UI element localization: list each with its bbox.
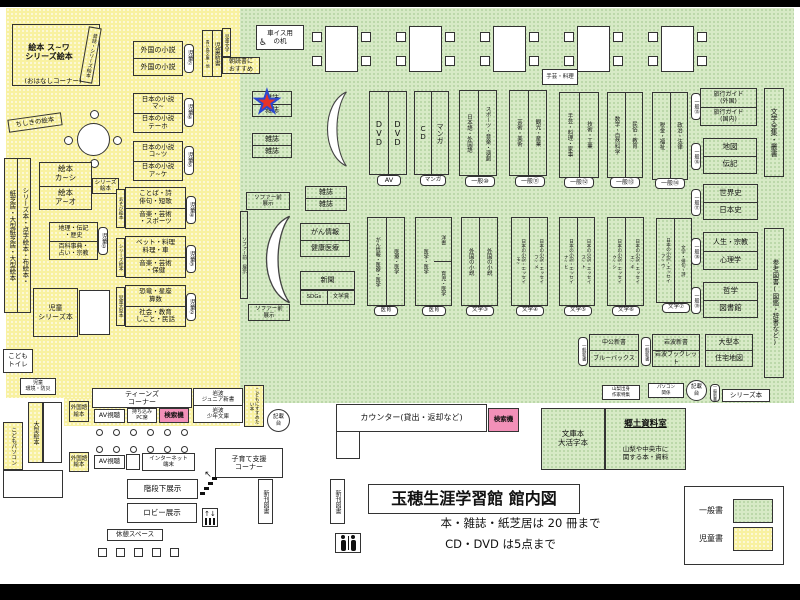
reading-table-3-chair-0 xyxy=(480,32,490,42)
iwanami-shinsho-shelf-row-0: 岩波新書 xyxy=(653,335,699,350)
shinbun-shelf-row-0: 新聞 xyxy=(301,272,354,289)
jido-shinsho-shelf-col-0: 青い鳥文庫・他 xyxy=(203,31,212,76)
reading-table-1-chair-3 xyxy=(361,56,371,66)
kaidan-shita-tenji-row-0: 階段下展示 xyxy=(128,480,197,498)
jinsei-shelf-row-1: 心理学 xyxy=(704,251,757,270)
chuko-shinsho-shelf-row-0: 中公新書 xyxy=(590,335,638,350)
jido-kankyo-bosai-box-row-0: 児童 環境・防災 xyxy=(21,379,55,394)
legend-general-swatch xyxy=(733,499,773,523)
iwanami-junior-shelf-rows: 岩波 ジュニア新書岩波 少年文庫 xyxy=(194,389,242,422)
lobby-tenji: ロビー展示 xyxy=(127,503,197,523)
gaikokugo-ehon-2-row-0: 外国語 絵本 xyxy=(70,453,88,471)
pc-kankei-box-rows: パソコン 関係 xyxy=(649,384,683,397)
kyodo-shiryo-shitsu: 郷土資料室山梨や中央市に 関する本・資料 xyxy=(605,408,686,470)
iwanami-shinsho-shelf-rows: 岩波新書岩波ブックレット xyxy=(653,335,699,366)
iwanami-junior-shelf-row-1: 岩波 少年文庫 xyxy=(194,405,242,422)
jido-series-box: 児童 シリーズ本 xyxy=(33,288,78,337)
ippan12-shelf-col-1: 技術・工業 xyxy=(579,93,599,177)
reading-table-4 xyxy=(564,26,623,72)
asadoku-osusume-box-rows: 朝読書に おすすめ xyxy=(223,58,259,73)
series-tenji-shelf-cols: 紙芝居・大型紙芝居・大型絵本シリーズ本・点字絵本・布絵本・ xyxy=(5,159,30,312)
reading-table-2-chair-0 xyxy=(396,32,406,42)
iwanami-junior-shelf-row-0: 岩波 ジュニア新書 xyxy=(194,389,242,405)
sofa-2-shape xyxy=(250,214,294,305)
ippan11-badge: 一般⑪ xyxy=(515,176,545,187)
yamanashi-sakka-box-rows: 山梨出身 作家特集 xyxy=(603,386,639,399)
asadoku-osusume-box-row-0: 朝読書に おすすめ xyxy=(223,58,259,73)
map-title: 玉穂生涯学習館 館内図 xyxy=(368,484,580,514)
shinbun-shelf: 新聞 xyxy=(300,271,355,290)
tetsugaku-shelf: 哲学図書館 xyxy=(703,282,758,318)
chizu-denki-shelf-rows: 地図伝記 xyxy=(704,139,756,173)
av-shicho-1: AV視聴 xyxy=(94,409,125,423)
toilet-icon xyxy=(335,533,361,553)
counter-rows: カウンター(貸出・返却など) xyxy=(337,405,486,431)
bungaku3-shelf-col-0: 外国の小説 xyxy=(462,218,479,305)
ippan11-shelf-col-1: 観光・産業 xyxy=(528,91,547,175)
bungaku5-badge: 文学⑤ xyxy=(564,306,592,316)
elevator-icon-p-0 xyxy=(205,518,207,525)
nihon-shosetsu-jido-shelf-2: 日本の小説 コ~ツ日本の小説 ア~ケ xyxy=(133,141,183,181)
tetsugaku-shelf-row-0: 哲学 xyxy=(704,283,757,300)
med-shelf-2-col-0: 医学・医学 xyxy=(416,218,434,305)
map-title-rows: 玉穂生涯学習館 館内図 xyxy=(369,485,579,513)
kyodo-shiryo-shitsu-row-1: 山梨や中央市に 関する本・資料 xyxy=(606,439,685,469)
round-table-chair-2 xyxy=(64,136,73,145)
ryoko-guide-shelf: 旅行ガイド (外国)旅行ガイド (国内) xyxy=(700,88,757,126)
reading-table-1-chair-2 xyxy=(361,32,371,42)
chair-row-1-seat-5 xyxy=(181,429,188,436)
ehon-ka-shi-shelf-row-1: 絵本 ア~オ xyxy=(40,186,91,210)
kyukei-space-label: 休憩スペース xyxy=(107,529,163,541)
kaidan-shita-tenji: 階段下展示 xyxy=(127,479,198,499)
gaikokugo-ehon-1-row-0: 外国語 絵本 xyxy=(70,402,88,421)
ippan10-shelf-col-0: 日本語・外国語 xyxy=(460,91,478,175)
gaikokugo-ehon-1-rows: 外国語 絵本 xyxy=(70,402,88,421)
sofa-tenji-bottom-row-0: ソファー前 展示 xyxy=(249,305,289,320)
toilet-icon-man xyxy=(341,540,346,551)
sofa-1 xyxy=(314,90,350,168)
stairs-icon-step-0 xyxy=(200,492,205,495)
kaidan-shita-tenji-rows: 階段下展示 xyxy=(128,480,197,498)
jido-series-box-rows: 児童 シリーズ本 xyxy=(34,289,77,336)
med-badge-1: 医育 xyxy=(374,306,398,316)
shugei-ryori-label-rows: 手芸・料理 xyxy=(543,70,577,84)
ippan16-badge: 一般⑯ xyxy=(691,143,701,170)
mochikomi-pc-seki-rows: 持ち込み PC席 xyxy=(128,409,156,422)
zasshi-shelf-2-row-1: 雑誌 xyxy=(253,145,291,157)
kodomo-toilet-row-0: こども トイレ xyxy=(4,350,32,372)
reading-table-5 xyxy=(648,26,707,72)
kodomo-pc: こどもパソコン xyxy=(3,422,23,470)
bungaku-zenshu-shelf: 文学全集・叢書 xyxy=(764,88,784,177)
jido-series-box-row-0: 児童 シリーズ本 xyxy=(34,289,77,336)
iwanami-junior-shelf: 岩波 ジュニア新書岩波 少年文庫 xyxy=(193,388,243,423)
shinbun-shelf-rows: 新聞 xyxy=(301,272,354,289)
kosodate-shien-corner-rows: 子育て支援 コーナー xyxy=(216,449,282,477)
kyukei-seats-seat-0 xyxy=(98,548,107,557)
cd-manga-shelf-cols: CDマンガ xyxy=(415,92,448,174)
chair-row-2-seat-4 xyxy=(164,446,171,453)
map-note-2: CD・DVD は5点まで xyxy=(408,537,593,553)
counter: カウンター(貸出・返却など) xyxy=(336,404,487,432)
med-shelf-1-cols: がん情報・医療・医学医療・医学 xyxy=(368,218,404,305)
sdgs-bungakusho-shelf: SDGs文学賞 xyxy=(300,290,355,305)
ippan15-badge: 一般⑮ xyxy=(691,93,701,120)
mochikomi-pc-seki: 持ち込み PC席 xyxy=(127,408,157,423)
kensakuki-2: 検索機 xyxy=(488,408,519,432)
bungaku6-badge: 文学⑥ xyxy=(612,306,640,316)
zasshi-shelf-3-row-0: 雑誌 xyxy=(306,187,346,198)
kyukei-seats-seat-1 xyxy=(116,548,125,557)
reading-table-2-chair-1 xyxy=(396,56,406,66)
stairs-icon-step-1 xyxy=(204,487,209,490)
chiri-hyakka-shelf: 地理・伝記 ・歴史百科事典・ 占い・宗教 xyxy=(49,222,98,260)
legend-box xyxy=(684,486,784,565)
current-location-star: ★ xyxy=(251,87,283,119)
ippan-shinsho-badge-3: 一般新書 xyxy=(710,384,720,402)
lobby-tenji-rows: ロビー展示 xyxy=(128,504,196,522)
chuko-shinsho-shelf: 中公新書ブルーバックス xyxy=(589,334,639,367)
chair-row-2-seat-5 xyxy=(181,446,188,453)
kodomo-susume-tag: こどもにすすめたい本 xyxy=(244,385,264,427)
reading-table-4-chair-0 xyxy=(564,32,574,42)
gan-joho-shelf-rows: がん情報健康医療 xyxy=(301,224,349,256)
reading-table-2-chair-3 xyxy=(445,56,455,66)
kisaidai-1: 記載 台 xyxy=(267,409,290,432)
kyoryu-shelf-rows: 恐竜・星座 算数社会・教育 しごと・民話 xyxy=(126,286,185,326)
reading-table-3-top xyxy=(493,26,526,72)
reading-table-4-chair-1 xyxy=(564,56,574,66)
ippan14-shelf: 税金・福祉政治・法律 xyxy=(652,92,688,180)
ippan12-shelf-cols: 手芸・料理・家事技術・工業 xyxy=(560,93,598,177)
av-shicho-1-rows: AV視聴 xyxy=(95,410,124,422)
kisaidai-2: 記載 台 xyxy=(686,380,707,401)
jido-ogata-tag: 児童大型本 xyxy=(116,287,125,326)
bungaku7-shelf-cols: 日本の小説・エッセイ ア~ウ文学・俳句・詩 xyxy=(657,219,691,302)
gaikoku-shosetsu-jido-shelf-row-1: 外国の小説 xyxy=(134,58,182,75)
chiri-hyakka-shelf-row-1: 百科事典・ 占い・宗教 xyxy=(50,241,97,260)
dvd-shelf-cols: DVDDVD xyxy=(370,92,406,174)
chair-row-1-seat-1 xyxy=(113,429,120,436)
sdgs-bungakusho-shelf-cell-1: 文学賞 xyxy=(327,291,354,304)
chuko-shinsho-shelf-rows: 中公新書ブルーバックス xyxy=(590,335,638,366)
kyukei-space-label-rows: 休憩スペース xyxy=(108,530,162,540)
asobi-ehon-tag: あそび絵本 xyxy=(116,189,125,228)
med-badge-2: 医育 xyxy=(422,306,446,316)
kotoba-shelf-rows: ことば・詩 俳句・短歌音楽・芸術 ・スポーツ xyxy=(126,188,185,228)
ryoko-guide-shelf-row-0: 旅行ガイド (外国) xyxy=(701,89,756,107)
ippan14-shelf-cols: 税金・福祉政治・法律 xyxy=(653,93,687,179)
chiri-hyakka-shelf-rows: 地理・伝記 ・歴史百科事典・ 占い・宗教 xyxy=(50,223,97,259)
ippan14-shelf-col-0: 税金・福祉 xyxy=(653,93,670,179)
jido-badge-7: 児童⑦ xyxy=(184,44,194,73)
pc-kankei-box: パソコン 関係 xyxy=(648,383,684,398)
sanko-tosho-shelf: 参考図書(図鑑・辞書など) xyxy=(764,228,784,378)
pet-ryori-shelf-rows: ペット・料理 料理・車音楽・芸術 ・保健 xyxy=(126,237,185,277)
internet-tanmatsu-row-0: インターネット 端末 xyxy=(143,454,194,470)
teens-corner-rows: ティーンズ コーナー xyxy=(93,389,191,407)
reading-table-1-chair-1 xyxy=(312,56,322,66)
med-shelf-2-cols: 医学・医学洋書育児・医学 xyxy=(416,218,451,305)
bench-shelf xyxy=(3,470,63,498)
top-letterbox-bar xyxy=(0,0,800,7)
counter-leg xyxy=(336,431,360,459)
series-tenji-shelf: 紙芝居・大型紙芝居・大型絵本シリーズ本・点字絵本・布絵本・ xyxy=(4,158,31,313)
sofa-tenji-left: ソファー前 展示 xyxy=(240,211,248,299)
series-ehon-tag-row-0: シリーズ 絵本 xyxy=(93,179,118,193)
jido-shinsho-shelf-cols: 青い鳥文庫・他児童新書 xyxy=(203,31,221,76)
gaikoku-shosetsu-jido-shelf: 外国の小説外国の小説 xyxy=(133,41,183,76)
ippan11-shelf-cols: 芸術・美術観光・産業 xyxy=(510,91,546,175)
bunko-shelf-row-0: 文庫本 大活字本 xyxy=(542,409,604,469)
reading-table-1-chair-0 xyxy=(312,32,322,42)
sekaishi-shelf-row-1: 日本史 xyxy=(704,202,757,220)
ippan13-shelf-col-0: 数学・自然科学 xyxy=(608,93,625,177)
ippan-shinsho-badge-1: 一般新書 xyxy=(578,337,588,366)
asadoku-osusume-box: 朝読書に おすすめ xyxy=(222,57,260,74)
mochikomi-pc-seki-row-0: 持ち込み PC席 xyxy=(128,409,156,422)
kodomo-toilet-rows: こども トイレ xyxy=(4,350,32,372)
ippan17-badge: 一般⑰ xyxy=(691,189,701,216)
round-table-chair-0 xyxy=(90,110,99,119)
elevator-icon: ↑↓ xyxy=(202,508,218,527)
internet-tanmatsu: インターネット 端末 xyxy=(142,453,195,471)
med-shelf-2-col-1-row-1: 育児・医学 xyxy=(434,261,452,305)
zasshi-shelf-3-rows: 雑誌雑誌 xyxy=(306,187,346,210)
av-shicho-2: AV視聴 xyxy=(94,455,125,469)
ippan11-shelf-col-0: 芸術・美術 xyxy=(510,91,528,175)
dvd-shelf-col-0: DVD xyxy=(370,92,388,174)
bungaku7-shelf-col-1: 文学・俳句・詩 xyxy=(674,219,692,302)
nihon-shosetsu-jido-shelf-2-row-1: 日本の小説 ア~ケ xyxy=(134,161,182,181)
zasshi-shelf-3-row-1: 雑誌 xyxy=(306,198,346,210)
wheelchair-icon: ♿ xyxy=(257,37,269,49)
iwanami-shinsho-shelf: 岩波新書岩波ブックレット xyxy=(652,334,700,367)
ippan13-shelf: 数学・自然科学民俗・教育 xyxy=(607,92,643,178)
ippan14-badge: 一般⑭ xyxy=(655,178,685,189)
tetsugaku-shelf-row-1: 図書館 xyxy=(704,300,757,318)
reading-table-4-chair-2 xyxy=(613,32,623,42)
bungaku6-shelf-cols: 日本の小説・エッセイ ク~シ日本の小説・エッセイ エ~キ xyxy=(608,218,643,305)
reading-table-2 xyxy=(396,26,455,72)
ippan18-badge: 一般⑱ xyxy=(691,238,701,265)
yamanashi-sakka-box-row-0: 山梨出身 作家特集 xyxy=(603,386,639,399)
ippan12-shelf: 手芸・料理・家事技術・工業 xyxy=(559,92,599,178)
map-note-1: 本・雑誌・紙芝居は 20 冊まで xyxy=(408,516,633,532)
reading-table-1 xyxy=(312,26,371,72)
bungaku7-badge: 文学⑦ xyxy=(662,303,690,313)
med-shelf-2: 医学・医学洋書育児・医学 xyxy=(415,217,452,306)
elevator-icon-people xyxy=(204,518,216,525)
med-shelf-1-col-0: がん情報・医療・医学 xyxy=(368,218,386,305)
jido-badge-4: 児童④ xyxy=(186,196,196,224)
toilet-icon-woman xyxy=(351,540,356,551)
ogata-ehon-shelf: 大型絵本 xyxy=(28,402,43,463)
ippan13-shelf-col-1: 民俗・教育 xyxy=(625,93,643,177)
bunko-shelf: 文庫本 大活字本 xyxy=(541,408,605,470)
series-ehon-tag: シリーズ 絵本 xyxy=(92,178,119,194)
internet-tanmatsu-rows: インターネット 端末 xyxy=(143,454,194,470)
chuko-shinsho-shelf-row-1: ブルーバックス xyxy=(590,350,638,366)
kyukei-seats-seat-3 xyxy=(152,548,161,557)
cd-manga-shelf-col-1: マンガ xyxy=(431,92,448,174)
kyoryu-shelf-row-1: 社会・教育 しごと・民話 xyxy=(126,306,185,327)
chair-row-2-seat-1 xyxy=(113,446,120,453)
series-tenji-shelf-col-0: 紙芝居・大型紙芝居・大型絵本 xyxy=(5,159,17,312)
jido-badge-5: 児童⑤ xyxy=(184,146,194,175)
cd-manga-shelf-col-0: CD xyxy=(415,92,431,174)
counter-row-0: カウンター(貸出・返却など) xyxy=(337,405,486,431)
av-shicho-2-rows: AV視聴 xyxy=(95,456,124,468)
shugei-ryori-label-row-0: 手芸・料理 xyxy=(543,70,577,84)
ehon-ka-shi-shelf: 絵本 カ~シ絵本 ア~オ xyxy=(39,162,92,210)
bungaku7-shelf-col-0: 日本の小説・エッセイ ア~ウ xyxy=(657,219,674,302)
gaikoku-shosetsu-jido-shelf-rows: 外国の小説外国の小説 xyxy=(134,42,182,75)
av-shicho-1-row-0: AV視聴 xyxy=(95,410,124,422)
bungaku4-shelf-col-0: 日本の小説・エッセイ モ~ xyxy=(512,218,529,305)
bungaku5-shelf-col-0: 日本の小説・エッセイ ナ~ヒ xyxy=(560,218,577,305)
sofa-1-shape xyxy=(314,90,350,168)
chair-row-2-seat-2 xyxy=(130,446,137,453)
gaikokugo-ehon-2: 外国語 絵本 xyxy=(69,452,89,472)
kotoba-shelf: ことば・詩 俳句・短歌音楽・芸術 ・スポーツ xyxy=(125,187,186,229)
sofa-2 xyxy=(250,214,294,305)
ippan12-badge: 一般⑫ xyxy=(564,177,594,188)
sekaishi-shelf: 世界史日本史 xyxy=(703,184,758,220)
bungaku5-shelf-cols: 日本の小説・エッセイ ナ~ヒ日本の小説・エッセイ ス~ト xyxy=(560,218,594,305)
nihon-shosetsu-jido-shelf-2-row-0: 日本の小説 コ~ツ xyxy=(134,142,182,161)
legend-jido-swatch xyxy=(733,527,773,551)
tetsugaku-shelf-rows: 哲学図書館 xyxy=(704,283,757,317)
series-bon-box-row-0: シリーズ本 xyxy=(723,390,769,401)
bungaku4-badge: 文学④ xyxy=(516,306,544,316)
med-shelf-2-col-1-row-0: 洋書 xyxy=(434,218,452,261)
library-floor-map: 昔話・シリーズ絵本絵本 ス~ワ シリーズ絵本(おはなしコーナー)ちしきの絵本紙芝… xyxy=(0,0,800,600)
dvd-shelf-col-1: DVD xyxy=(388,92,407,174)
shinkan-tosho-1: 新刊図書 xyxy=(258,479,273,524)
kensakuki-1: 検索機 xyxy=(159,408,189,423)
ogata-jutaku-shelf-rows: 大型本住宅地図 xyxy=(706,335,752,366)
bungaku6-shelf-col-0: 日本の小説・エッセイ ク~シ xyxy=(608,218,625,305)
ippan10-shelf-cols: 日本語・外国語スポーツ・音楽・演劇 xyxy=(460,91,496,175)
ippan10-badge: 一般⑩ xyxy=(465,176,495,187)
kyukei-seats-seat-2 xyxy=(134,548,143,557)
pet-ryori-shelf: ペット・料理 料理・車音楽・芸術 ・保健 xyxy=(125,236,186,278)
reading-table-3-chair-2 xyxy=(529,32,539,42)
legend-jido-label: 児童書 xyxy=(691,533,731,545)
chair-row-2-seat-0 xyxy=(96,446,103,453)
series-ehon-tag-2: シリーズ絵本 xyxy=(116,238,125,277)
med-shelf-2-col-1: 洋書育児・医学 xyxy=(434,218,452,305)
nihon-shosetsu-jido-shelf-2-rows: 日本の小説 コ~ツ日本の小説 ア~ケ xyxy=(134,142,182,180)
bungaku6-shelf-col-1: 日本の小説・エッセイ エ~キ xyxy=(625,218,643,305)
jido-badge-3: 児童③ xyxy=(186,245,196,273)
cd-manga-shelf: CDマンガ xyxy=(414,91,449,175)
legend-general-label: 一般書 xyxy=(691,505,731,517)
kensakuki-2-rows: 検索機 xyxy=(489,409,518,431)
round-table xyxy=(65,111,122,168)
reading-table-2-chair-2 xyxy=(445,32,455,42)
nihon-shosetsu-jido-shelf-1: 日本の小説 マ~日本の小説 テーホ xyxy=(133,93,183,133)
gaikoku-shosetsu-jido-shelf-row-0: 外国の小説 xyxy=(134,42,182,58)
stairs-icon-step-2 xyxy=(208,482,213,485)
elevator-icon-arrows: ↑↓ xyxy=(204,510,216,518)
round-table-top xyxy=(77,123,110,156)
jido-shinsho-shelf: 青い鳥文庫・他児童新書 xyxy=(202,30,222,77)
ryoko-guide-shelf-row-1: 旅行ガイド (国内) xyxy=(701,107,756,126)
kyukei-seats-seat-4 xyxy=(170,548,179,557)
zasshi-shelf-2: 雑誌雑誌 xyxy=(252,133,292,158)
nihon-shosetsu-jido-shelf-1-rows: 日本の小説 マ~日本の小説 テーホ xyxy=(134,94,182,132)
iwanami-shinsho-shelf-row-1: 岩波ブックレット xyxy=(653,350,699,366)
reading-table-5-chair-0 xyxy=(648,32,658,42)
bungaku5-shelf-col-1: 日本の小説・エッセイ ス~ト xyxy=(577,218,595,305)
sofa-tenji-bottom-rows: ソファー前 展示 xyxy=(249,305,289,320)
kyoryu-shelf-row-0: 恐竜・星座 算数 xyxy=(126,286,185,306)
sofa-tenji-bottom: ソファー前 展示 xyxy=(248,304,290,321)
ippan10-shelf: 日本語・外国語スポーツ・音楽・演劇 xyxy=(459,90,497,176)
ogata-jutaku-shelf: 大型本住宅地図 xyxy=(705,334,753,367)
series-bon-box: シリーズ本 xyxy=(722,389,770,402)
chizu-denki-shelf-row-0: 地図 xyxy=(704,139,756,156)
jido-badge-2: 児童② xyxy=(186,293,196,321)
jido-badge-1: 児童① xyxy=(98,227,108,255)
sofa-tenji-top-row-0: ソファー前 展示 xyxy=(247,193,289,209)
gan-joho-shelf-row-0: がん情報 xyxy=(301,224,349,240)
shugei-ryori-label: 手芸・料理 xyxy=(542,69,578,85)
gan-joho-shelf-row-1: 健康医療 xyxy=(301,240,349,257)
zasshi-shelf-2-row-0: 雑誌 xyxy=(253,134,291,145)
kodomo-toilet: こども トイレ xyxy=(3,349,33,373)
kosodate-shien-corner-row-0: 子育て支援 コーナー xyxy=(216,449,282,477)
reading-table-2-top xyxy=(409,26,442,72)
nihon-shosetsu-jido-shelf-1-row-0: 日本の小説 マ~ xyxy=(134,94,182,113)
kyukei-space-label-row-0: 休憩スペース xyxy=(108,530,162,540)
toilet-icon-divider xyxy=(348,536,349,550)
ippan13-shelf-cols: 数学・自然科学民俗・教育 xyxy=(608,93,642,177)
reading-table-5-chair-3 xyxy=(697,56,707,66)
reading-table-1-top xyxy=(325,26,358,72)
zasshi-shelf-3: 雑誌雑誌 xyxy=(305,186,347,211)
shinkan-tosho-2: 新刊図書 xyxy=(330,479,345,524)
ippan13-badge: 一般⑬ xyxy=(610,177,640,188)
bungaku4-shelf-col-1: 日本の小説・エッセイ フ~メ xyxy=(529,218,547,305)
ehon-ka-shi-shelf-row-0: 絵本 カ~シ xyxy=(40,163,91,186)
gaikokugo-ehon-2-rows: 外国語 絵本 xyxy=(70,453,88,471)
manga-badge: マンガ xyxy=(420,175,446,186)
reading-table-3 xyxy=(480,26,539,72)
bungaku3-shelf: 外国の小説外国の小説 xyxy=(461,217,498,306)
ippan19-badge: 一般⑲ xyxy=(691,287,701,314)
ippan12-shelf-col-0: 手芸・料理・家事 xyxy=(560,93,579,177)
ogata-jutaku-shelf-row-1: 住宅地図 xyxy=(706,350,752,366)
bungaku3-shelf-col-1: 外国の小説 xyxy=(479,218,497,305)
jido-bungaku-tag: 児童文学 xyxy=(222,28,231,57)
pc-kankei-box-row-0: パソコン 関係 xyxy=(649,384,683,397)
sofa-tenji-top: ソファー前 展示 xyxy=(246,192,290,210)
ippan11-shelf: 芸術・美術観光・産業 xyxy=(509,90,547,176)
bungaku6-shelf: 日本の小説・エッセイ ク~シ日本の小説・エッセイ エ~キ xyxy=(607,217,644,306)
teens-corner: ティーンズ コーナー xyxy=(92,388,192,408)
elevator-icon-p-1 xyxy=(209,518,211,525)
stairs-icon-arrow: ↖ xyxy=(202,470,214,480)
yamanashi-sakka-box: 山梨出身 作家特集 xyxy=(602,385,640,400)
lobby-tenji-row-0: ロビー展示 xyxy=(128,504,196,522)
kotoba-shelf-row-1: 音楽・芸術 ・スポーツ xyxy=(126,208,185,229)
gaikokugo-ehon-1: 外国語 絵本 xyxy=(69,401,89,422)
sofa-tenji-top-rows: ソファー前 展示 xyxy=(247,193,289,209)
